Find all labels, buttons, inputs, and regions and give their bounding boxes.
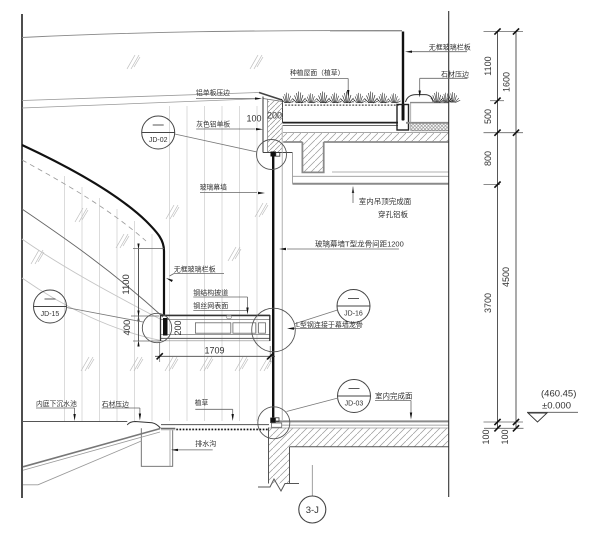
svg-text:800: 800: [483, 151, 493, 166]
svg-text:钢丝网表面: 钢丝网表面: [193, 301, 228, 310]
svg-text:内庭下沉水池: 内庭下沉水池: [36, 399, 77, 408]
svg-text:100: 100: [481, 429, 491, 444]
svg-text:JD-03: JD-03: [345, 401, 364, 408]
svg-text:玻璃幕墙T型龙骨间距1200: 玻璃幕墙T型龙骨间距1200: [315, 239, 404, 249]
svg-text:无框玻璃栏板: 无框玻璃栏板: [174, 265, 216, 274]
svg-text:JD-02: JD-02: [149, 137, 168, 144]
svg-text:1100: 1100: [121, 274, 132, 294]
svg-text:植草: 植草: [195, 398, 209, 407]
svg-text:1709: 1709: [204, 346, 224, 356]
svg-text:钢结构披道: 钢结构披道: [193, 288, 228, 297]
svg-text:L型钢连接于幕墙龙骨: L型钢连接于幕墙龙骨: [296, 320, 363, 329]
svg-text:400: 400: [122, 320, 133, 336]
svg-text:室内吊顶完成面: 室内吊顶完成面: [359, 196, 412, 206]
svg-text:石材压边: 石材压边: [102, 400, 129, 409]
svg-text:无框玻璃栏板: 无框玻璃栏板: [429, 43, 471, 52]
svg-text:200: 200: [267, 111, 282, 121]
svg-text:室内完成面: 室内完成面: [375, 391, 413, 401]
svg-text:200: 200: [173, 320, 183, 335]
svg-text:4500: 4500: [501, 267, 511, 287]
svg-text:穿孔铝板: 穿孔铝板: [378, 209, 408, 219]
svg-text:铝单板压边: 铝单板压边: [196, 88, 230, 97]
svg-text:JD-15: JD-15: [41, 311, 60, 318]
svg-text:(460.45): (460.45): [541, 389, 576, 400]
svg-text:±0.000: ±0.000: [542, 401, 571, 412]
svg-text:JD-16: JD-16: [344, 311, 363, 318]
svg-text:100: 100: [500, 429, 510, 444]
svg-text:石材压边: 石材压边: [441, 70, 469, 79]
svg-text:500: 500: [483, 109, 493, 124]
svg-text:3-J: 3-J: [306, 505, 319, 516]
svg-text:1100: 1100: [483, 56, 493, 75]
svg-text:玻璃幕墙: 玻璃幕墙: [200, 183, 227, 192]
svg-text:灰色铝单板: 灰色铝单板: [196, 119, 230, 128]
svg-text:3700: 3700: [483, 293, 493, 313]
svg-text:种植屋面（植草）: 种植屋面（植草）: [290, 68, 344, 77]
svg-text:排水沟: 排水沟: [195, 439, 216, 448]
svg-text:100: 100: [246, 114, 261, 124]
svg-text:1600: 1600: [502, 72, 512, 92]
